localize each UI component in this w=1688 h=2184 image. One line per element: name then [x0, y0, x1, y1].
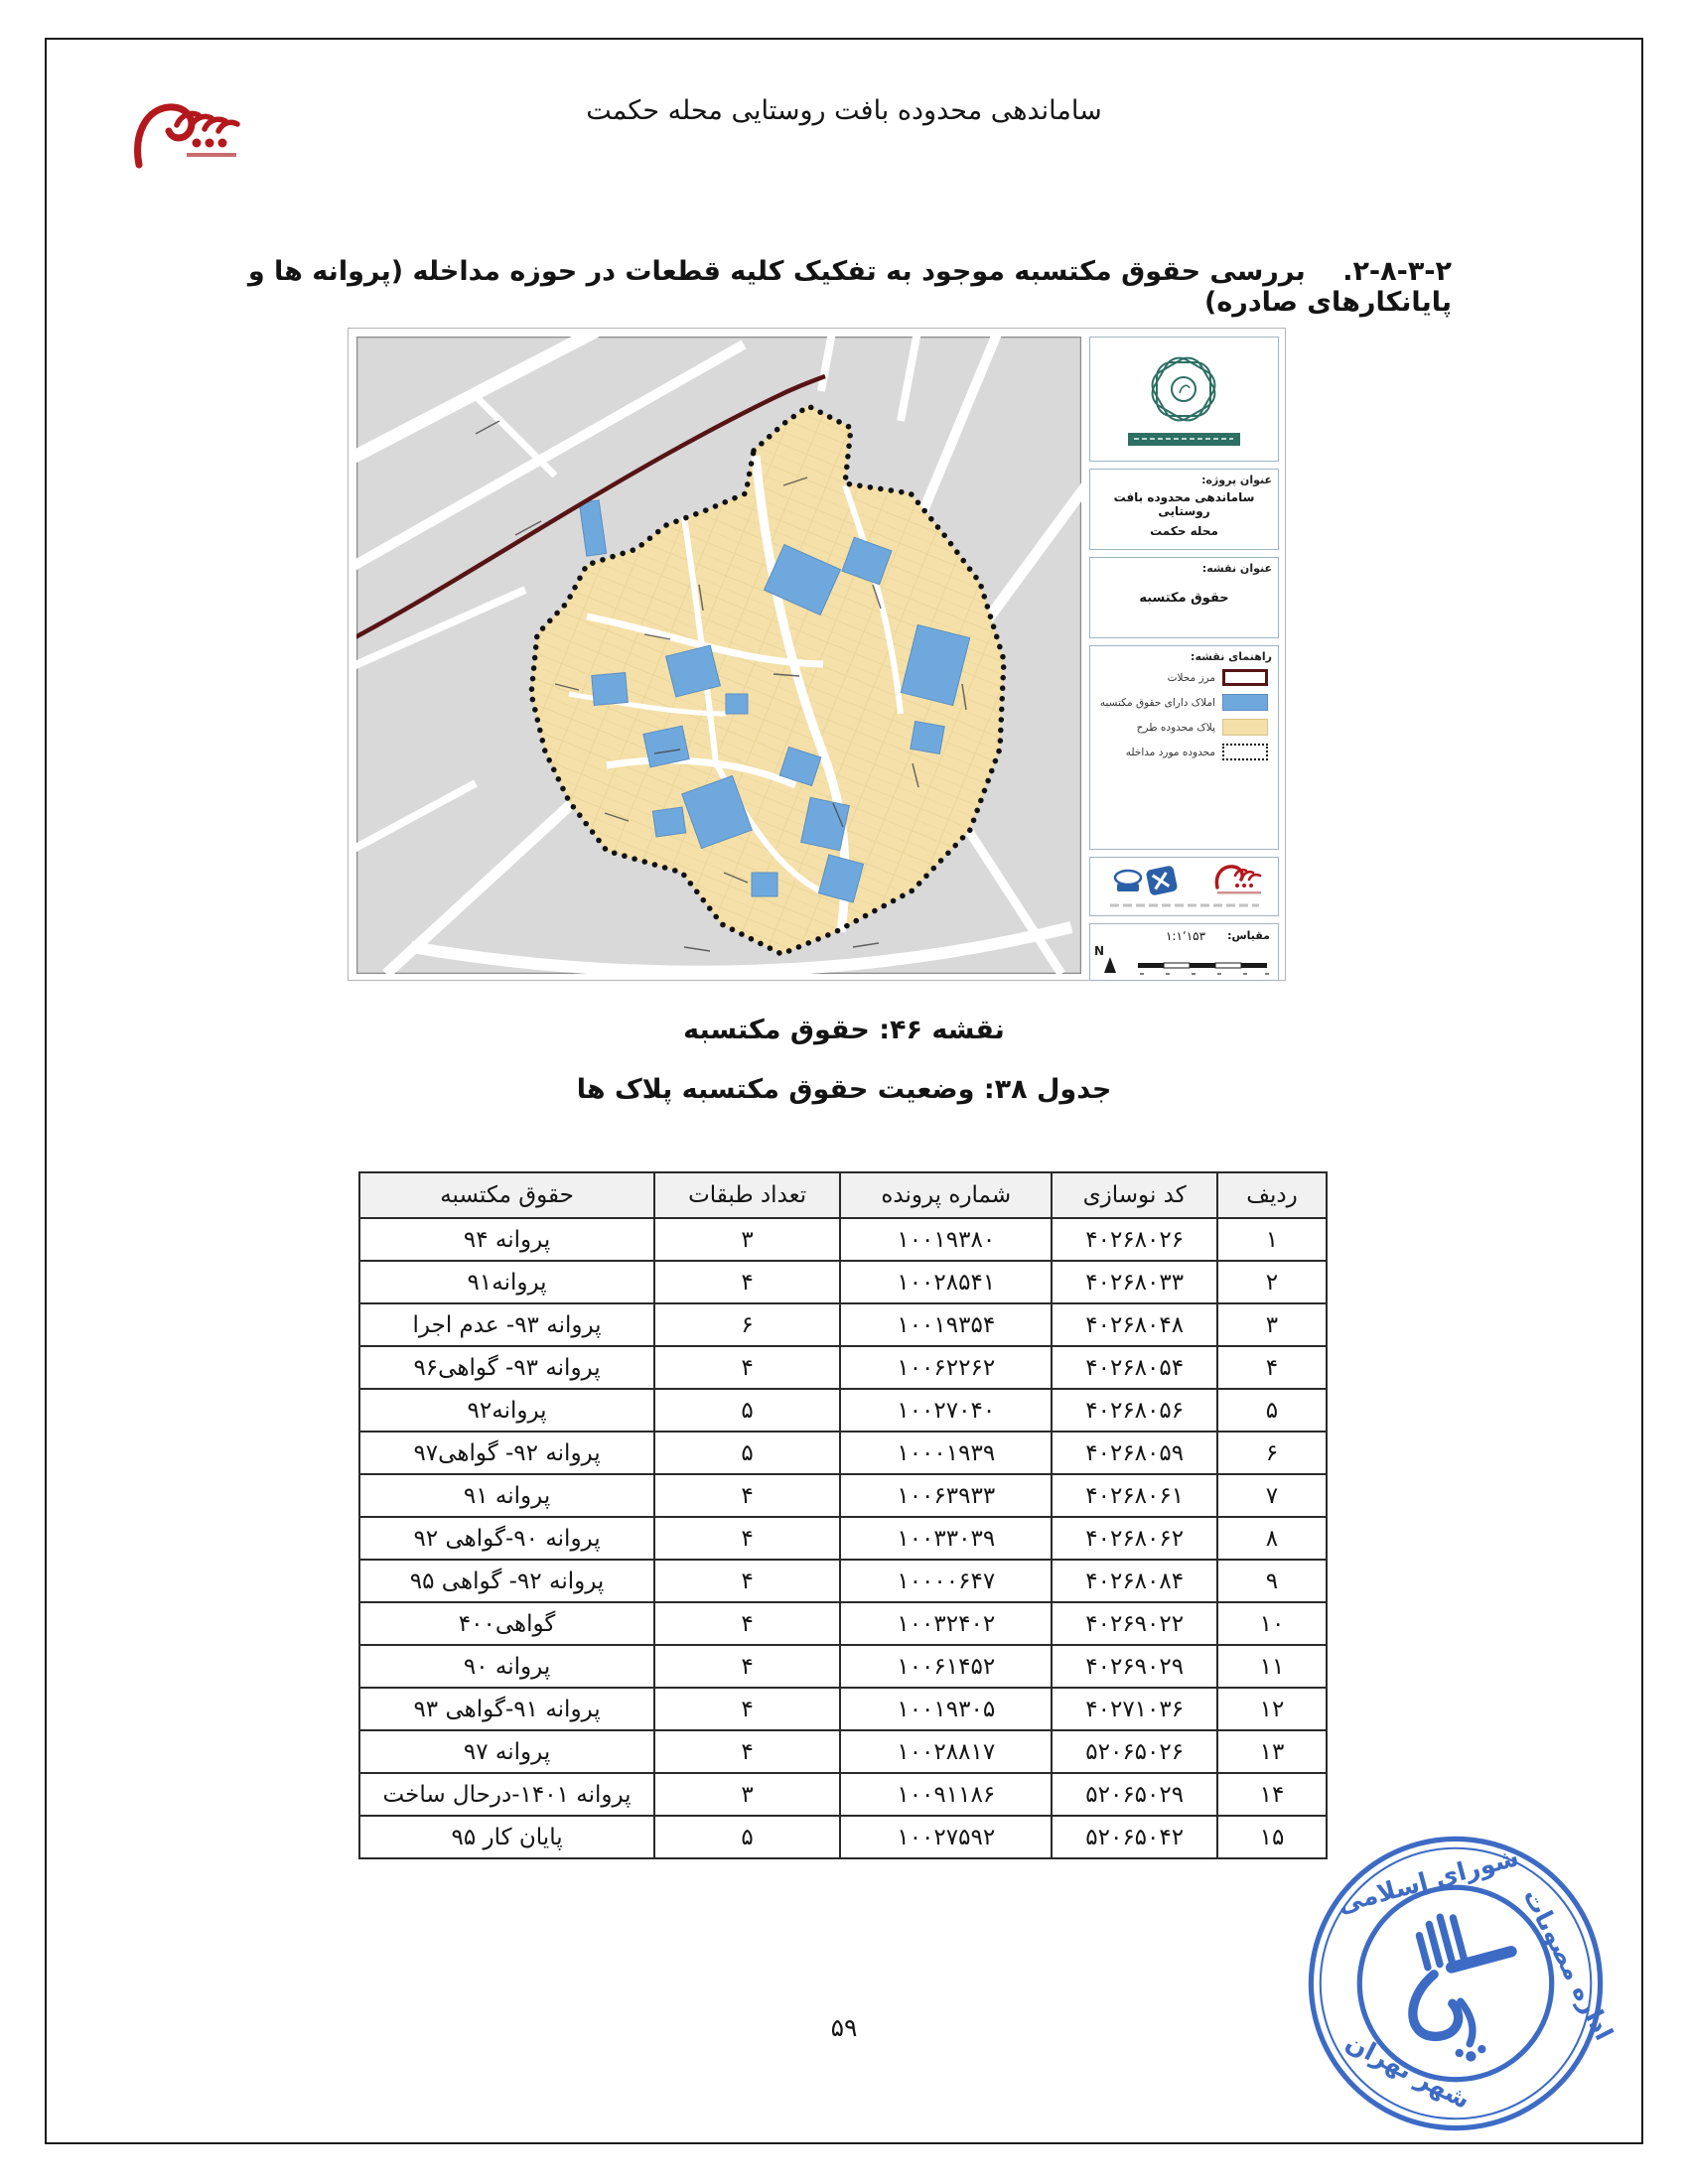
project-title-label: عنوان پروژه: — [1090, 470, 1278, 486]
table-cell: ۴ — [1217, 1346, 1327, 1389]
table-cell: پروانه ۹۳- عدم اجرا — [359, 1303, 654, 1346]
table-cell: ۱۰۰۲۸۵۴۱ — [840, 1261, 1052, 1303]
table-cell: ۴۰۲۷۱۰۳۶ — [1052, 1688, 1217, 1730]
table-cell: ۱۰۰۶۱۴۵۲ — [840, 1645, 1052, 1688]
table-cell: ۴۰۲۶۸۰۵۴ — [1052, 1346, 1217, 1389]
table-cell: پروانه ۹۲- گواهی۹۷ — [359, 1432, 654, 1474]
table-cell: ۱۰۰۲۷۰۴۰ — [840, 1389, 1052, 1432]
table-cell: ۳ — [654, 1218, 840, 1261]
fill-beige-swatch-icon — [1222, 719, 1268, 736]
table-cell: ۴ — [654, 1602, 840, 1645]
stamp-text-top: شورای اسلامی — [1335, 1843, 1522, 1919]
table-cell: ۱۵ — [1217, 1816, 1327, 1858]
table-cell: ۱۰۰۹۱۱۸۶ — [840, 1773, 1052, 1816]
brand-logo-icon — [125, 87, 244, 192]
table-row: ۱۱۴۰۲۶۹۰۲۹۱۰۰۶۱۴۵۲۴پروانه ۹۰ — [359, 1645, 1327, 1688]
table-row: ۳۴۰۲۶۸۰۴۸۱۰۰۱۹۳۵۴۶پروانه ۹۳- عدم اجرا — [359, 1303, 1327, 1346]
table-cell: ۴ — [654, 1730, 840, 1773]
legend-item: مرز محلات — [1096, 669, 1268, 686]
table-cell: ۸ — [1217, 1517, 1327, 1560]
table-cell: ۳ — [1217, 1303, 1327, 1346]
table-cell: ۴ — [654, 1346, 840, 1389]
table-cell: ۵۲۰۶۵۰۲۶ — [1052, 1730, 1217, 1773]
table-cell: ۱۰۰۲۷۵۹۲ — [840, 1816, 1052, 1858]
table-cell: ۴۰۲۶۸۰۴۸ — [1052, 1303, 1217, 1346]
table-cell: ۴ — [654, 1645, 840, 1688]
credits-box — [1089, 857, 1279, 916]
table-cell: ۴ — [654, 1688, 840, 1730]
fill-blue-swatch-icon — [1222, 694, 1268, 711]
table-cell: ۵ — [654, 1816, 840, 1858]
consultant-logo-icon — [1216, 867, 1261, 894]
table-row: ۷۴۰۲۶۸۰۶۱۱۰۰۶۳۹۳۳۴پروانه ۹۱ — [359, 1474, 1327, 1517]
table-cell: ۵ — [654, 1389, 840, 1432]
table-cell: ۴۰۲۶۸۰۳۳ — [1052, 1261, 1217, 1303]
outline-darkred-swatch-icon — [1222, 669, 1268, 686]
table-row: ۲۴۰۲۶۸۰۳۳۱۰۰۲۸۵۴۱۴پروانه۹۱ — [359, 1261, 1327, 1303]
map-caption: نقشه ۴۶: حقوق مکتسبه — [0, 1015, 1688, 1045]
table-cell: ۱۰ — [1217, 1602, 1327, 1645]
table-row: ۵۴۰۲۶۸۰۵۶۱۰۰۲۷۰۴۰۵پروانه۹۲ — [359, 1389, 1327, 1432]
table-cell: ۴۰۲۶۸۰۸۴ — [1052, 1560, 1217, 1602]
column-header: شماره پرونده — [840, 1172, 1052, 1218]
credits-logos — [1090, 858, 1278, 915]
table-cell: ۳ — [654, 1773, 840, 1816]
section-title-line: ۲-۸-۳-۲. بررسی حقوق مکتسبه موجود به تفکی… — [181, 256, 1452, 318]
table-row: ۸۴۰۲۶۸۰۶۲۱۰۰۳۳۰۳۹۴پروانه ۹۰-گواهی ۹۲ — [359, 1517, 1327, 1560]
table-cell: ۱۰۰۲۸۸۱۷ — [840, 1730, 1052, 1773]
table-cell: ۴ — [654, 1517, 840, 1560]
neighborhood-map — [356, 337, 1081, 974]
table-row: ۱۲۴۰۲۷۱۰۳۶۱۰۰۱۹۳۰۵۴پروانه ۹۱-گواهی ۹۳ — [359, 1688, 1327, 1730]
scale-label: مقیاس: — [1227, 929, 1270, 942]
scale-bar — [1138, 963, 1269, 974]
table-cell: پروانه ۹۴ — [359, 1218, 654, 1261]
table-cell: پروانه۹۲ — [359, 1389, 654, 1432]
table-cell: ۱۰۰۱۹۳۸۰ — [840, 1218, 1052, 1261]
table-row: ۱۰۴۰۲۶۹۰۲۲۱۰۰۳۲۴۰۲۴گواهی۴۰۰ — [359, 1602, 1327, 1645]
table-cell: ۱۰۰۰۰۶۴۷ — [840, 1560, 1052, 1602]
scale-value: ۱:۱٬۱۵۳ — [1166, 929, 1205, 943]
legend-item: املاک دارای حقوق مکتسبه — [1096, 694, 1268, 711]
map-image — [356, 337, 1081, 974]
column-header: ردیف — [1217, 1172, 1327, 1218]
legend-item: پلاک محدوده طرح — [1096, 719, 1268, 736]
table-cell: پروانه ۱۴۰۱-درحال ساخت — [359, 1773, 654, 1816]
project-title-line1: ساماندهی محدوده بافت روستایی — [1090, 490, 1278, 518]
table-cell: ۴۰۲۶۸۰۶۱ — [1052, 1474, 1217, 1517]
legend-item-label: املاک دارای حقوق مکتسبه — [1100, 697, 1215, 709]
table-row: ۶۴۰۲۶۸۰۵۹۱۰۰۰۱۹۳۹۵پروانه ۹۲- گواهی۹۷ — [359, 1432, 1327, 1474]
section-number: ۲-۸-۳-۲. — [1342, 256, 1452, 287]
document-page: ساماندهی محدوده بافت روستایی محله حکمت ۲… — [0, 0, 1688, 2184]
map-title-value: حقوق مکتسبه — [1090, 591, 1278, 606]
page-number: ۵۹ — [0, 2013, 1688, 2042]
table-cell: ۱۱ — [1217, 1645, 1327, 1688]
table-caption: جدول ۳۸: وضعیت حقوق مکتسبه پلاک ها — [0, 1074, 1688, 1105]
table-body: ۱۴۰۲۶۸۰۲۶۱۰۰۱۹۳۸۰۳پروانه ۹۴۲۴۰۲۶۸۰۳۳۱۰۰۲… — [359, 1218, 1327, 1858]
table-cell: پروانه ۹۲- گواهی ۹۵ — [359, 1560, 654, 1602]
table-cell: پروانه ۹۰ — [359, 1645, 654, 1688]
table-cell: ۵۲۰۶۵۰۲۹ — [1052, 1773, 1217, 1816]
table-row: ۴۴۰۲۶۸۰۵۴۱۰۰۶۲۲۶۲۴پروانه ۹۳- گواهی۹۶ — [359, 1346, 1327, 1389]
stamp-center-calligraphy — [1389, 1902, 1536, 2074]
legend-panel: عنوان پروژه: ساماندهی محدوده بافت روستای… — [1089, 337, 1279, 974]
table-cell: پروانه ۹۷ — [359, 1730, 654, 1773]
project-title-box: عنوان پروژه: ساماندهی محدوده بافت روستای… — [1089, 469, 1279, 550]
table-cell: ۱۰۰۶۳۹۳۳ — [840, 1474, 1052, 1517]
column-header: کد نوسازی — [1052, 1172, 1217, 1218]
table-cell: ۶ — [1217, 1432, 1327, 1474]
legend-box: راهنمای نقشه: مرز محلاتاملاک دارای حقوق … — [1089, 645, 1279, 850]
table-cell: ۱۰۰۳۳۰۳۹ — [840, 1517, 1052, 1560]
table-cell: ۴ — [654, 1474, 840, 1517]
table-cell: ۴۰۲۶۸۰۵۶ — [1052, 1389, 1217, 1432]
table-cell: گواهی۴۰۰ — [359, 1602, 654, 1645]
north-arrow-icon — [1104, 957, 1116, 973]
table-cell: پایان کار ۹۵ — [359, 1816, 654, 1858]
organization-logo-icon — [1115, 865, 1178, 895]
rights-table: ردیفکد نوسازیشماره پروندهتعداد طبقاتحقوق… — [358, 1171, 1328, 1859]
table-cell: ۴ — [654, 1560, 840, 1602]
table-cell: ۴۰۲۶۹۰۲۲ — [1052, 1602, 1217, 1645]
table-row: ۱۴۰۲۶۸۰۲۶۱۰۰۱۹۳۸۰۳پروانه ۹۴ — [359, 1218, 1327, 1261]
map-figure: عنوان پروژه: ساماندهی محدوده بافت روستای… — [348, 328, 1286, 981]
table-cell: ۴ — [654, 1261, 840, 1303]
table-cell: پروانه ۹۰-گواهی ۹۲ — [359, 1517, 654, 1560]
table-row: ۱۴۵۲۰۶۵۰۲۹۱۰۰۹۱۱۸۶۳پروانه ۱۴۰۱-درحال ساخ… — [359, 1773, 1327, 1816]
table-cell: پروانه ۹۳- گواهی۹۶ — [359, 1346, 654, 1389]
table-cell: ۶ — [654, 1303, 840, 1346]
project-title-line2: محله حکمت — [1090, 524, 1278, 538]
column-header: تعداد طبقات — [654, 1172, 840, 1218]
table-cell: ۵۲۰۶۵۰۴۲ — [1052, 1816, 1217, 1858]
table-cell: پروانه ۹۱-گواهی ۹۳ — [359, 1688, 654, 1730]
table-cell: ۹ — [1217, 1560, 1327, 1602]
table-cell: ۱۰۰۳۲۴۰۲ — [840, 1602, 1052, 1645]
table-cell: پروانه۹۱ — [359, 1261, 654, 1303]
legend-items: مرز محلاتاملاک دارای حقوق مکتسبهپلاک محد… — [1090, 663, 1278, 760]
dashed-black-swatch-icon — [1222, 744, 1268, 760]
map-title-label: عنوان نقشه: — [1090, 558, 1278, 575]
legend-item-label: محدوده مورد مداخله — [1126, 747, 1215, 758]
table-cell: ۱۰۰۶۲۲۶۲ — [840, 1346, 1052, 1389]
table-cell: ۵ — [1217, 1389, 1327, 1432]
table-cell: ۱۰۰۰۱۹۳۹ — [840, 1432, 1052, 1474]
legend-box-label: راهنمای نقشه: — [1090, 646, 1278, 663]
legend-item-label: مرز محلات — [1168, 672, 1215, 684]
scale-box: مقیاس: ۱:۱٬۱۵۳ N — [1089, 923, 1279, 981]
emblem-box — [1089, 337, 1279, 462]
table-cell: ۱۰۰۱۹۳۵۴ — [840, 1303, 1052, 1346]
table-cell: ۴۰۲۶۹۰۲۹ — [1052, 1645, 1217, 1688]
table-cell: پروانه ۹۱ — [359, 1474, 654, 1517]
table-cell: ۱ — [1217, 1218, 1327, 1261]
table-row: ۱۵۵۲۰۶۵۰۴۲۱۰۰۲۷۵۹۲۵پایان کار ۹۵ — [359, 1816, 1327, 1858]
scale-bar-graphic: N — [1090, 943, 1278, 977]
legend-item-label: پلاک محدوده طرح — [1137, 722, 1215, 734]
table-row: ۹۴۰۲۶۸۰۸۴۱۰۰۰۰۶۴۷۴پروانه ۹۲- گواهی ۹۵ — [359, 1560, 1327, 1602]
section-title: بررسی حقوق مکتسبه موجود به تفکیک کلیه قط… — [248, 256, 1452, 318]
table-cell: ۲ — [1217, 1261, 1327, 1303]
municipality-emblem-icon — [1090, 338, 1278, 461]
table-cell: ۷ — [1217, 1474, 1327, 1517]
table-cell: ۱۲ — [1217, 1688, 1327, 1730]
table-cell: ۱۰۰۱۹۳۰۵ — [840, 1688, 1052, 1730]
table-row: ۱۳۵۲۰۶۵۰۲۶۱۰۰۲۸۸۱۷۴پروانه ۹۷ — [359, 1730, 1327, 1773]
table-header: ردیفکد نوسازیشماره پروندهتعداد طبقاتحقوق… — [359, 1172, 1327, 1218]
table-cell: ۴۰۲۶۸۰۵۹ — [1052, 1432, 1217, 1474]
north-label: N — [1094, 944, 1104, 958]
table-cell: ۴۰۲۶۸۰۶۲ — [1052, 1517, 1217, 1560]
map-title-box: عنوان نقشه: حقوق مکتسبه — [1089, 557, 1279, 638]
consultant-brand-logo — [125, 87, 244, 192]
table-cell: ۴۰۲۶۸۰۲۶ — [1052, 1218, 1217, 1261]
legend-item: محدوده مورد مداخله — [1096, 744, 1268, 760]
header-title: ساماندهی محدوده بافت روستایی محله حکمت — [0, 95, 1688, 126]
table-cell: ۵ — [654, 1432, 840, 1474]
column-header: حقوق مکتسبه — [359, 1172, 654, 1218]
table-cell: ۱۴ — [1217, 1773, 1327, 1816]
table-cell: ۱۳ — [1217, 1730, 1327, 1773]
